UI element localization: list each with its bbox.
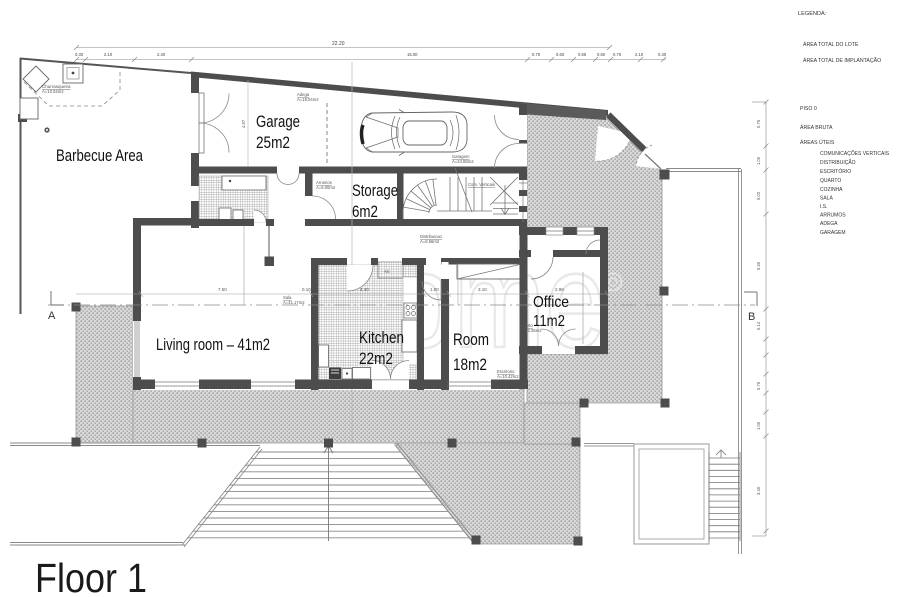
svg-text:COZINHA: COZINHA <box>820 187 843 193</box>
svg-text:5.14: 5.14 <box>756 321 761 330</box>
svg-text:GARAGEM: GARAGEM <box>820 230 846 236</box>
svg-text:0.60: 0.60 <box>597 52 606 57</box>
svg-text:22.20: 22.20 <box>332 41 345 47</box>
svg-text:ÁREAS ÚTEIS: ÁREAS ÚTEIS <box>800 139 835 146</box>
svg-text:4.87: 4.87 <box>241 119 246 128</box>
svg-text:2.40: 2.40 <box>157 52 166 57</box>
svg-text:COMUNICAÇÕES VERTICAIS: COMUNICAÇÕES VERTICAIS <box>820 150 890 157</box>
svg-text:A=12.35m2: A=12.35m2 <box>520 328 542 333</box>
svg-text:ARRUMOS: ARRUMOS <box>820 213 846 219</box>
svg-text:LEGENDA:: LEGENDA: <box>798 11 827 17</box>
svg-text:B: B <box>748 311 755 323</box>
svg-text:2.10: 2.10 <box>104 52 113 57</box>
svg-text:0.76: 0.76 <box>756 381 761 390</box>
svg-text:0.30: 0.30 <box>658 52 667 57</box>
svg-text:6m2: 6m2 <box>352 202 378 221</box>
svg-text:22m2: 22m2 <box>359 349 393 368</box>
svg-text:A=10.42m2: A=10.42m2 <box>497 374 519 379</box>
svg-text:3.40: 3.40 <box>756 486 761 495</box>
svg-text:3.10: 3.10 <box>478 287 487 292</box>
svg-text:4.30: 4.30 <box>360 287 369 292</box>
svg-text:DISTRIBUIÇÃO: DISTRIBUIÇÃO <box>820 159 856 166</box>
svg-text:Storage: Storage <box>352 181 398 200</box>
svg-text:Floor 1: Floor 1 <box>35 555 147 597</box>
svg-text:A=24.88m2: A=24.88m2 <box>452 159 474 164</box>
svg-text:Office: Office <box>533 294 569 311</box>
svg-text:I.S.: I.S. <box>820 204 828 210</box>
svg-text:ÁREA BRUTA: ÁREA BRUTA <box>800 124 833 131</box>
svg-text:A=8.56m2: A=8.56m2 <box>420 239 440 244</box>
svg-text:ÁREA TOTAL DO LOTE: ÁREA TOTAL DO LOTE <box>803 41 859 48</box>
svg-text:Arr.: Arr. <box>384 269 391 274</box>
svg-text:2.10: 2.10 <box>635 52 644 57</box>
svg-text:Room: Room <box>453 330 489 349</box>
svg-text:Barbecue Area: Barbecue Area <box>56 146 143 165</box>
svg-text:A=41.17m2: A=41.17m2 <box>283 300 305 305</box>
svg-text:0.70: 0.70 <box>613 52 622 57</box>
svg-text:0.30: 0.30 <box>75 52 84 57</box>
svg-text:Living room – 41m2: Living room – 41m2 <box>156 335 270 354</box>
svg-text:5.50: 5.50 <box>756 261 761 270</box>
svg-text:1.00: 1.00 <box>430 287 439 292</box>
svg-text:25m2: 25m2 <box>256 133 290 152</box>
svg-text:0.60: 0.60 <box>556 52 565 57</box>
svg-text:5.02: 5.02 <box>756 191 761 200</box>
svg-text:A=6.00m2: A=6.00m2 <box>316 185 336 190</box>
svg-text:7.50: 7.50 <box>218 287 227 292</box>
svg-text:0.70: 0.70 <box>532 52 541 57</box>
svg-text:1.00: 1.00 <box>756 156 761 165</box>
svg-text:SALA: SALA <box>820 196 833 202</box>
svg-text:18m2: 18m2 <box>453 355 487 374</box>
svg-text:A=10.04m2: A=10.04m2 <box>42 89 64 94</box>
svg-text:2.98: 2.98 <box>555 287 564 292</box>
svg-text:A: A <box>48 310 56 322</box>
svg-text:Kitchen: Kitchen <box>359 328 404 347</box>
svg-text:Garage: Garage <box>256 112 300 131</box>
svg-text:QUARTO: QUARTO <box>820 178 841 184</box>
svg-text:ÁREA TOTAL DE IMPLANTAÇÃO: ÁREA TOTAL DE IMPLANTAÇÃO <box>803 57 881 64</box>
svg-text:ADEGA: ADEGA <box>820 221 838 227</box>
svg-text:ESCRITÓRIO: ESCRITÓRIO <box>820 168 851 175</box>
svg-text:0.10: 0.10 <box>302 287 311 292</box>
svg-text:1.00: 1.00 <box>756 421 761 430</box>
svg-text:A=19.04m2: A=19.04m2 <box>297 97 319 102</box>
svg-text:0.65: 0.65 <box>578 52 587 57</box>
svg-text:15.00: 15.00 <box>407 52 418 57</box>
svg-text:PISO 0: PISO 0 <box>800 106 817 112</box>
svg-text:Com. Verticais: Com. Verticais <box>468 182 495 187</box>
svg-text:0.76: 0.76 <box>756 119 761 128</box>
